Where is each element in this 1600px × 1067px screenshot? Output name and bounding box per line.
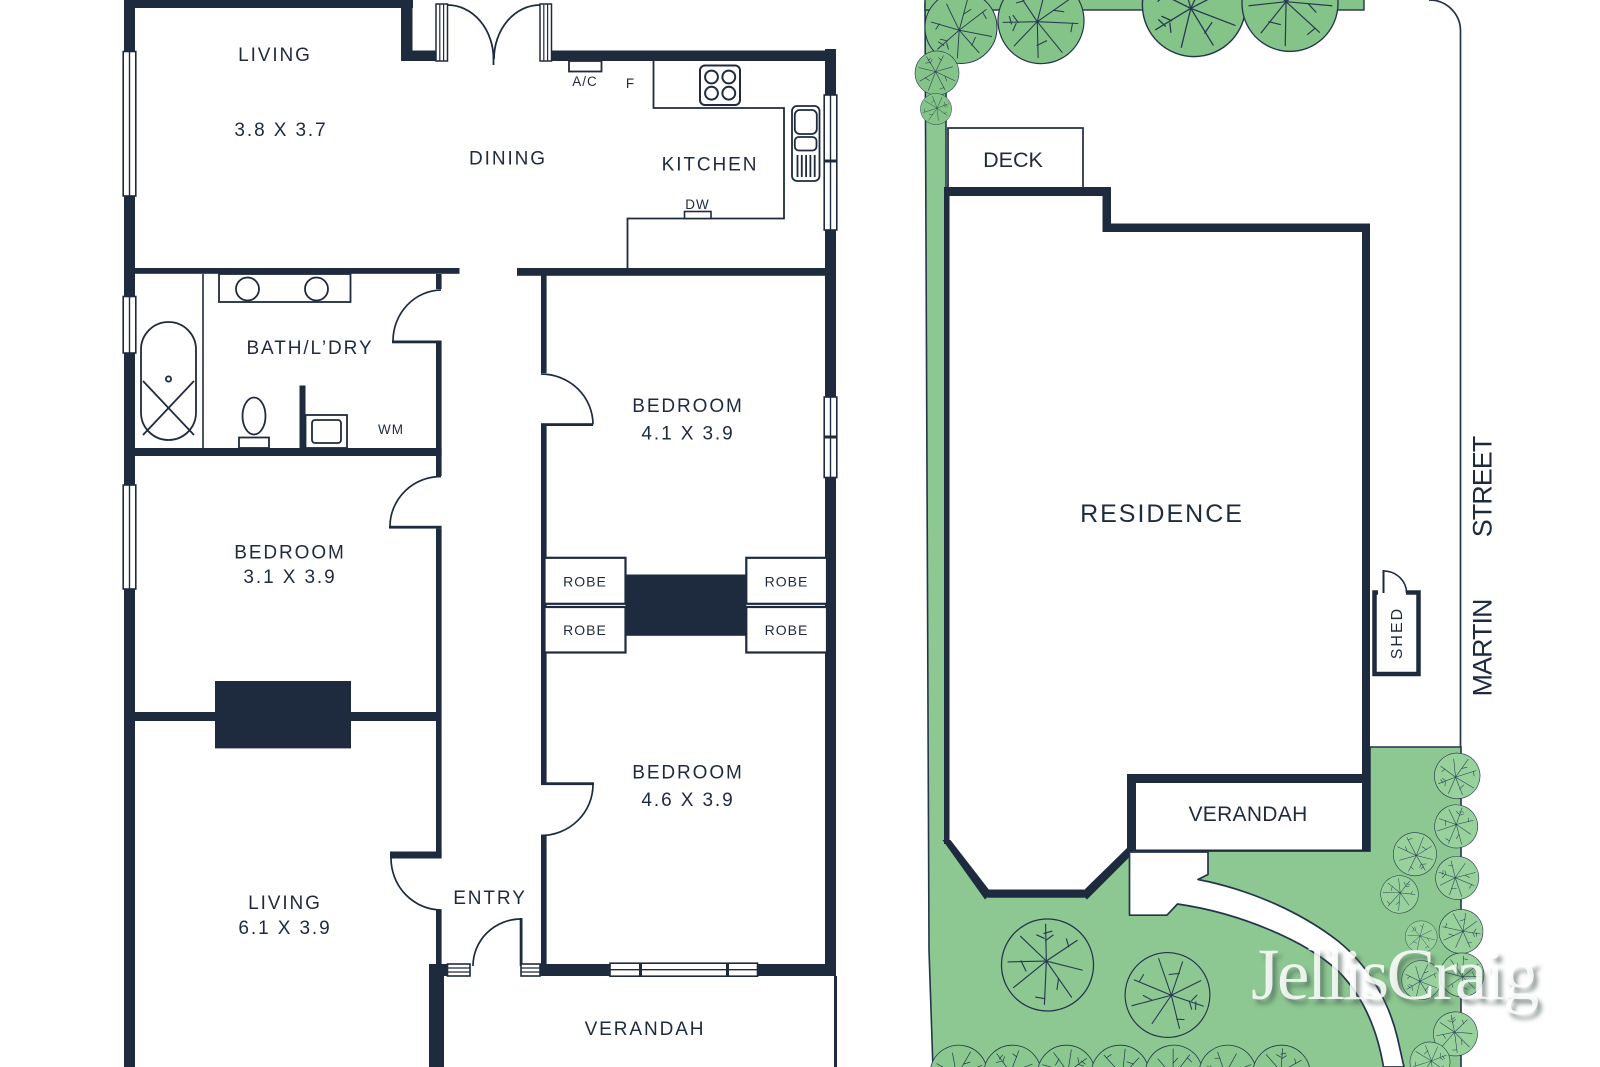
svg-text:JellisCraig: JellisCraig bbox=[1251, 934, 1539, 1015]
svg-text:3.8 X 3.7: 3.8 X 3.7 bbox=[234, 120, 327, 141]
svg-text:ROBE: ROBE bbox=[563, 574, 607, 590]
svg-text:ROBE: ROBE bbox=[765, 574, 809, 590]
svg-text:3.1 X 3.9: 3.1 X 3.9 bbox=[243, 567, 336, 588]
svg-text:SHED: SHED bbox=[1389, 607, 1406, 659]
svg-text:KITCHEN: KITCHEN bbox=[662, 155, 759, 176]
svg-text:6.1 X 3.9: 6.1 X 3.9 bbox=[238, 918, 331, 939]
svg-text:ENTRY: ENTRY bbox=[453, 888, 527, 909]
svg-text:VERANDAH: VERANDAH bbox=[585, 1019, 706, 1040]
svg-text:BEDROOM: BEDROOM bbox=[234, 543, 345, 564]
svg-text:ROBE: ROBE bbox=[765, 622, 809, 638]
svg-text:LIVING: LIVING bbox=[238, 45, 312, 66]
svg-text:VERANDAH: VERANDAH bbox=[1188, 803, 1307, 826]
svg-text:DINING: DINING bbox=[469, 149, 547, 170]
svg-text:BEDROOM: BEDROOM bbox=[632, 763, 743, 784]
svg-text:4.6 X 3.9: 4.6 X 3.9 bbox=[641, 790, 734, 811]
svg-text:STREET: STREET bbox=[1468, 436, 1498, 537]
svg-text:MARTIN: MARTIN bbox=[1468, 599, 1498, 696]
svg-text:WM: WM bbox=[378, 422, 404, 437]
svg-text:DW: DW bbox=[685, 197, 710, 212]
svg-text:DECK: DECK bbox=[983, 148, 1043, 172]
svg-text:ROBE: ROBE bbox=[563, 622, 607, 638]
svg-text:BEDROOM: BEDROOM bbox=[632, 396, 743, 417]
svg-text:F: F bbox=[626, 76, 635, 91]
svg-text:LIVING: LIVING bbox=[248, 893, 322, 914]
svg-text:4.1 X 3.9: 4.1 X 3.9 bbox=[641, 424, 734, 445]
svg-text:RESIDENCE: RESIDENCE bbox=[1080, 500, 1244, 528]
svg-text:BATH/L’DRY: BATH/L’DRY bbox=[246, 338, 373, 359]
svg-text:A/C: A/C bbox=[572, 74, 598, 89]
